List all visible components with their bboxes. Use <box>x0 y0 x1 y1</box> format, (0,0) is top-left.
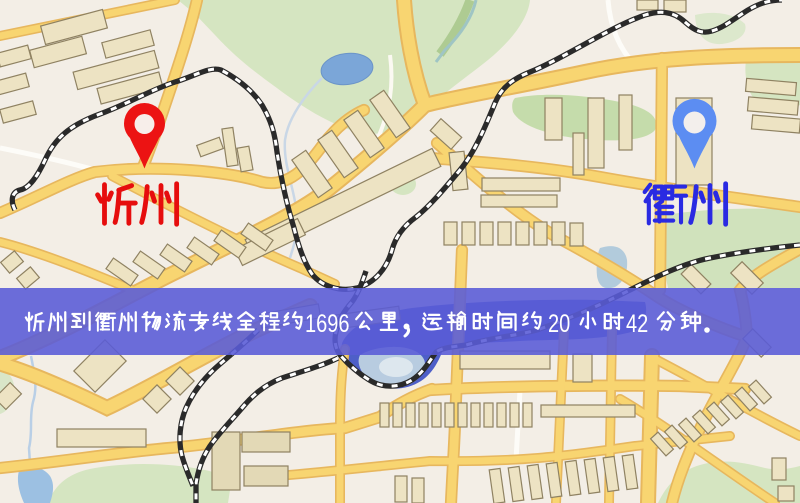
svg-text:1696: 1696 <box>305 310 349 338</box>
svg-text:20: 20 <box>548 310 570 338</box>
svg-text:42: 42 <box>626 310 648 338</box>
